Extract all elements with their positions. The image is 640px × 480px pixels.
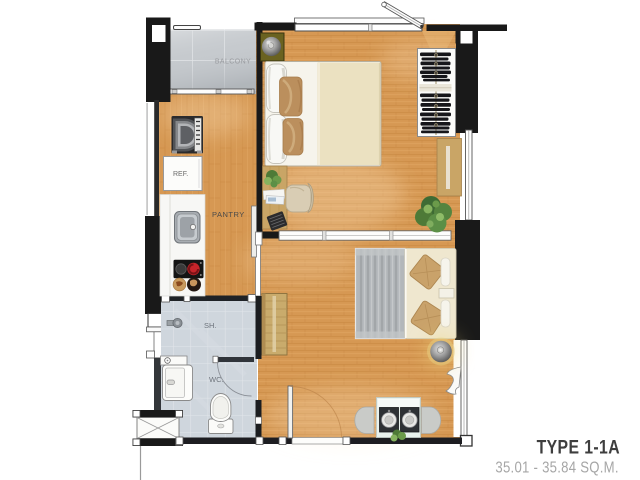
svg-text:REF.: REF. — [173, 171, 188, 178]
svg-text:PANTRY: PANTRY — [212, 210, 245, 219]
svg-text:TYPE 1-1A: TYPE 1-1A — [537, 436, 620, 458]
svg-text:SH.: SH. — [204, 321, 217, 330]
svg-text:BALCONY: BALCONY — [215, 59, 251, 66]
svg-text:35.01 - 35.84 SQ.M.: 35.01 - 35.84 SQ.M. — [495, 460, 618, 477]
svg-text:WC.: WC. — [209, 375, 224, 384]
